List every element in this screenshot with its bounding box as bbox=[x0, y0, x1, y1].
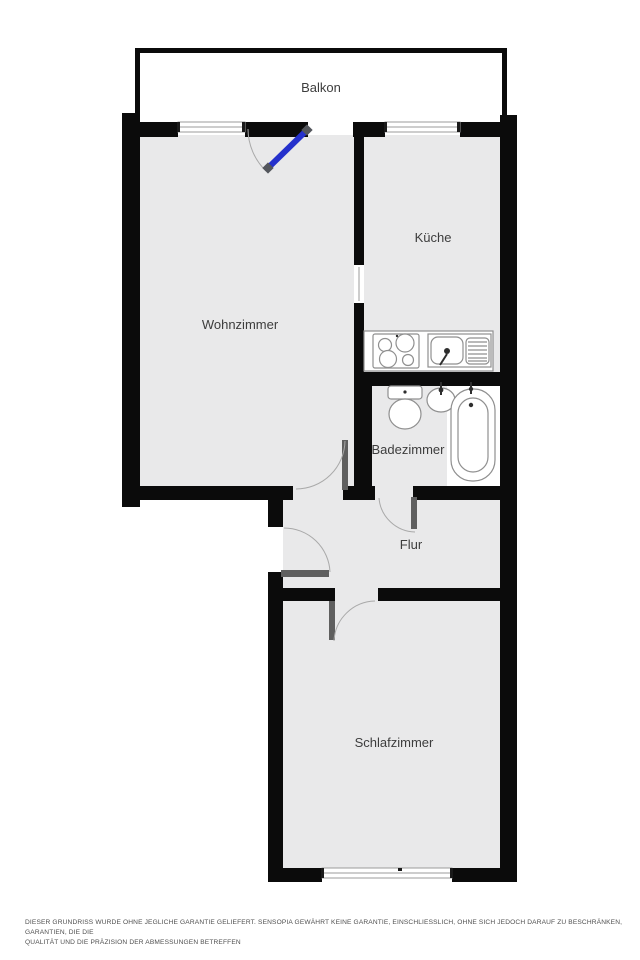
doorway-fill bbox=[375, 486, 413, 500]
room-label-badezimmer: Badezimmer bbox=[372, 442, 446, 457]
bathtub-icon bbox=[451, 382, 495, 481]
kitchen-sink-icon bbox=[428, 334, 491, 367]
room-label-wohnzimmer: Wohnzimmer bbox=[202, 317, 279, 332]
kitchen-counter bbox=[364, 331, 493, 371]
doorway-fill bbox=[335, 588, 378, 601]
room-label-kueche: Küche bbox=[415, 230, 452, 245]
room-wohnzimmer bbox=[138, 135, 354, 486]
room-label-flur: Flur bbox=[400, 537, 423, 552]
floor-plan-drawing: Balkon Wohnzimmer Küche Badezimmer Flur … bbox=[0, 0, 640, 960]
room-label-schlafzimmer: Schlafzimmer bbox=[355, 735, 434, 750]
stove-icon bbox=[373, 334, 419, 368]
doorway-fill bbox=[293, 486, 343, 500]
wohnzimmer-window-icon bbox=[177, 122, 245, 132]
schlafzimmer-window-icon bbox=[321, 868, 453, 878]
room-label-balkon: Balkon bbox=[301, 80, 341, 95]
disclaimer-text: DIESER GRUNDRISS WURDE OHNE JEGLICHE GAR… bbox=[25, 918, 625, 949]
disclaimer-line-1: DIESER GRUNDRISS WURDE OHNE JEGLICHE GAR… bbox=[25, 918, 625, 938]
kueche-window-icon bbox=[384, 122, 460, 132]
toilet-icon bbox=[388, 386, 422, 429]
floor-plan-page: Balkon Wohnzimmer Küche Badezimmer Flur … bbox=[0, 0, 640, 960]
disclaimer-line-2: QUALITÄT UND DIE PRÄZISION DER ABMESSUNG… bbox=[25, 938, 625, 948]
